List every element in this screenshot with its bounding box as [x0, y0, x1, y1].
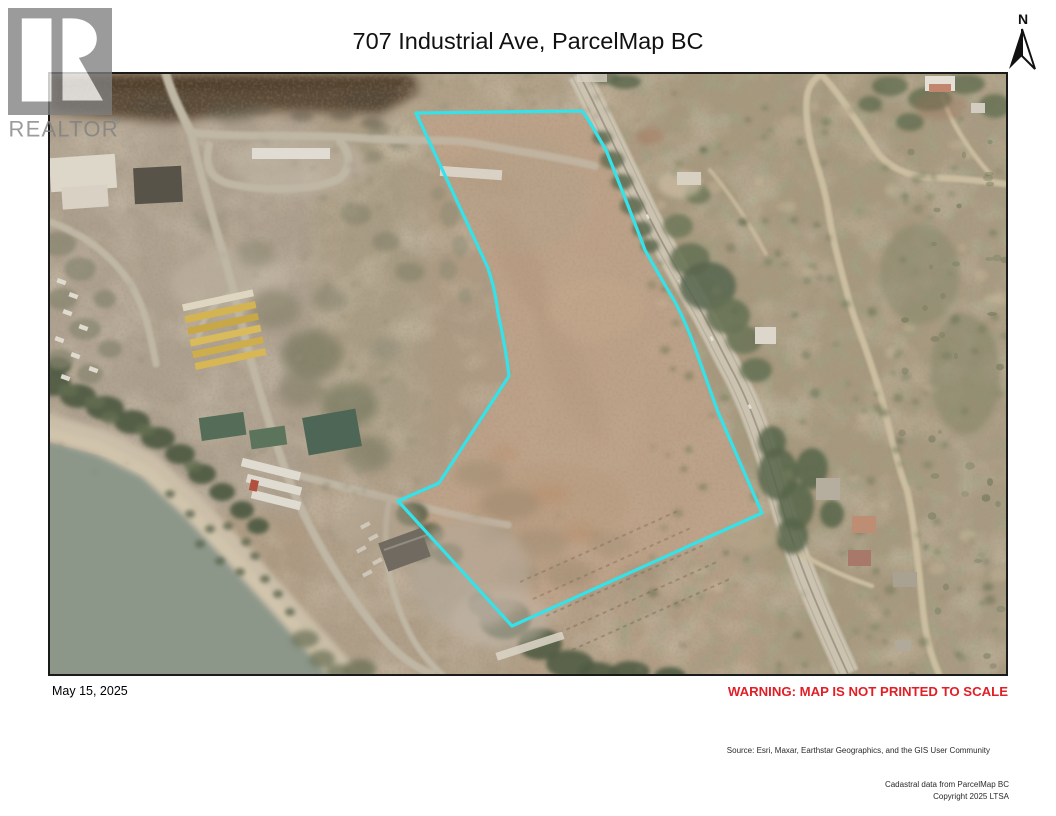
svg-text:N: N — [1018, 11, 1028, 27]
svg-text:®: ® — [112, 115, 120, 127]
svg-text:REALTOR: REALTOR — [9, 117, 119, 142]
